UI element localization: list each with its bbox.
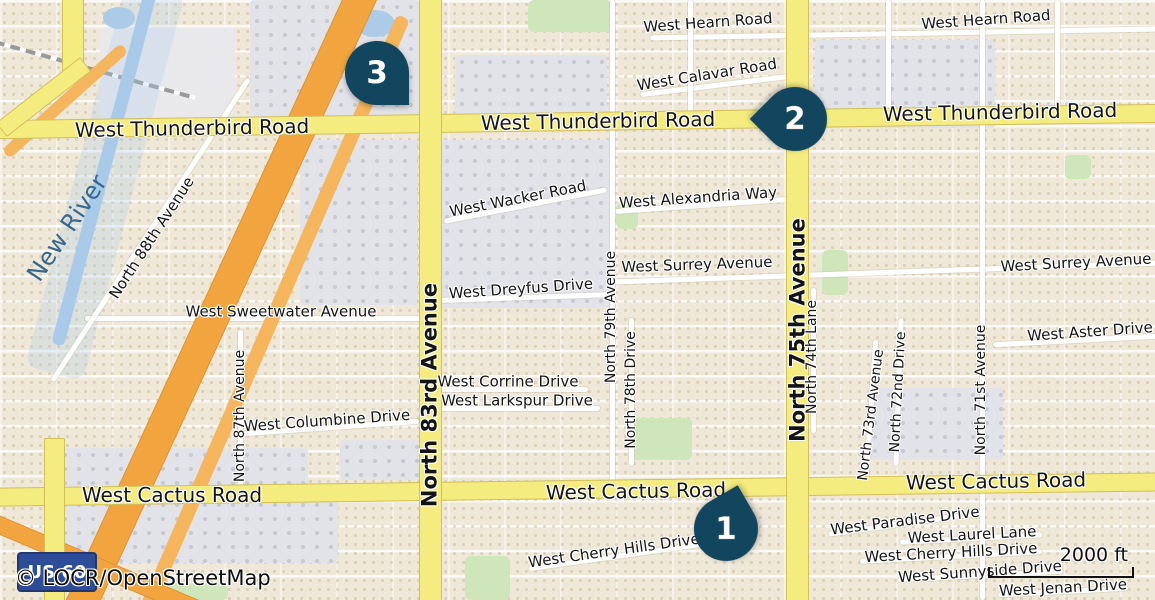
street-label: North 87th Avenue [233,350,247,482]
street-label: West Columbine Drive [243,408,410,435]
park-center [632,418,692,460]
street-label: West Aster Drive [1027,320,1154,344]
north-71st-avenue [980,0,985,600]
map-marker-1[interactable]: 1 [682,485,769,572]
street-label: West Cactus Road [82,485,262,505]
zone-commercial-cactus-83rd [340,440,420,480]
street-label: North 71st Avenue [974,325,988,456]
street-label: West Surrey Avenue [1000,252,1152,275]
street-label: West Corrine Drive [437,375,578,390]
scale-bar: 2000 ft [988,546,1134,578]
map-canvas[interactable]: West Hearn RoadWest Hearn RoadWest Calav… [0,0,1155,600]
street-label: North 78th Drive [624,331,638,449]
north-79th-avenue [610,0,615,485]
park-right-top [1065,155,1091,179]
map-marker-number: 1 [694,497,758,561]
street-label: West Surrey Avenue [621,255,772,275]
map-attribution: © LOCR/OpenStreetMap [15,568,271,589]
street-label: West Cherry Hills Drive [527,532,700,571]
street-label: West Cactus Road [906,469,1087,492]
street-label: West Jenan Drive [999,577,1128,599]
map-marker-number: 3 [345,41,409,105]
zone-commercial-cactus-nw [58,448,308,488]
street-label: West Thunderbird Road [883,100,1118,124]
street-label: North 74th Lane [805,300,819,414]
scale-bar-line [988,567,1134,578]
street-label: West Thunderbird Road [481,109,716,133]
map-marker-3[interactable]: 3 [345,41,409,105]
local-street-v2 [886,0,891,115]
street-label: West Sweetwater Avenue [185,305,376,320]
park-bottom-center [465,556,510,600]
local-street-v3 [1055,0,1060,115]
street-label: North 83rd Avenue [420,283,441,507]
scale-bar-label: 2000 ft [988,546,1134,565]
street-label: West Larkspur Drive [441,394,593,409]
zone-commercial-n-thunderbird [455,55,607,115]
park-top-center [528,0,612,32]
map-marker-number: 2 [763,87,827,151]
map-marker-2[interactable]: 2 [750,74,841,165]
street-label: West Hearn Road [643,11,773,35]
street-label: West Thunderbird Road [75,116,310,140]
street-label: North 79th Avenue [604,251,618,383]
